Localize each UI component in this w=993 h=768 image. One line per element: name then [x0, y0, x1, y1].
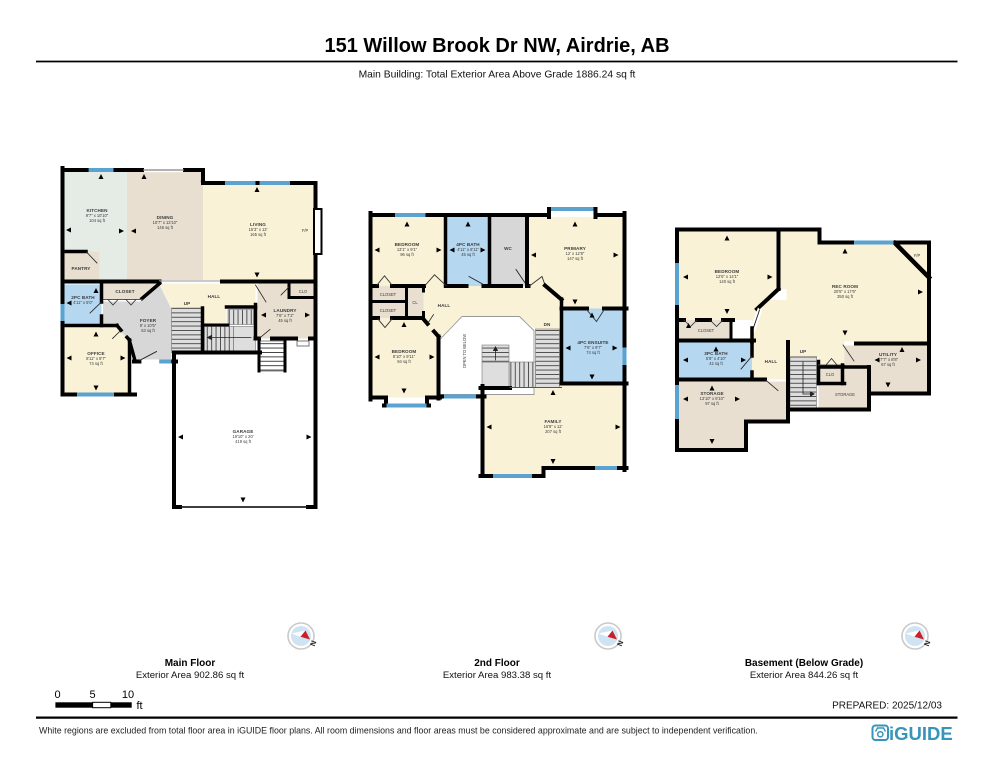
svg-text:Exterior Area 983.38 sq ft: Exterior Area 983.38 sq ft [443, 670, 552, 681]
svg-text:104 sq ft: 104 sq ft [89, 218, 106, 223]
svg-text:PANTRY: PANTRY [72, 266, 91, 271]
svg-text:CLOSET: CLOSET [380, 308, 397, 313]
svg-text:White regions are excluded fro: White regions are excluded from total fl… [39, 726, 758, 736]
svg-text:ft: ft [137, 700, 143, 712]
svg-text:0: 0 [54, 689, 60, 701]
svg-text:Main Building: Total Exterior: Main Building: Total Exterior Area Above… [359, 70, 636, 81]
svg-text:CL: CL [412, 300, 418, 305]
svg-text:5: 5 [89, 689, 95, 701]
svg-text:PREPARED: 2025/12/03: PREPARED: 2025/12/03 [832, 701, 942, 712]
svg-text:97 sq ft: 97 sq ft [705, 401, 719, 406]
svg-text:74 sq ft: 74 sq ft [89, 361, 103, 366]
svg-text:63 sq ft: 63 sq ft [141, 328, 155, 333]
svg-text:146 sq ft: 146 sq ft [157, 225, 174, 230]
svg-text:74 sq ft: 74 sq ft [586, 350, 600, 355]
svg-text:UP: UP [800, 349, 807, 354]
svg-text:F/P: F/P [914, 253, 921, 258]
svg-text:10: 10 [122, 689, 134, 701]
svg-text:Exterior Area 844.26 sq ft: Exterior Area 844.26 sq ft [750, 670, 859, 681]
svg-text:HALL: HALL [765, 359, 778, 364]
svg-text:45 sq ft: 45 sq ft [461, 252, 475, 257]
svg-text:147 sq ft: 147 sq ft [567, 256, 584, 261]
svg-text:STORAGE: STORAGE [835, 392, 855, 397]
svg-text:iGUIDE: iGUIDE [889, 723, 953, 744]
svg-text:419 sq ft: 419 sq ft [235, 439, 252, 444]
svg-text:HALL: HALL [208, 294, 221, 299]
svg-text:HALL: HALL [438, 303, 451, 308]
svg-text:DN: DN [544, 322, 551, 327]
svg-text:4'11" x 5'0": 4'11" x 5'0" [73, 300, 93, 305]
svg-text:WC: WC [504, 246, 512, 251]
svg-text:2nd Floor: 2nd Floor [474, 658, 520, 669]
svg-text:140 sq ft: 140 sq ft [719, 279, 736, 284]
svg-text:67 sq ft: 67 sq ft [881, 362, 895, 367]
svg-text:CLOSET: CLOSET [380, 292, 397, 297]
svg-text:CLO: CLO [826, 372, 834, 377]
svg-text:Exterior Area 902.86 sq ft: Exterior Area 902.86 sq ft [136, 670, 245, 681]
svg-text:165 sq ft: 165 sq ft [250, 232, 267, 237]
svg-text:Basement (Below Grade): Basement (Below Grade) [745, 658, 863, 669]
svg-text:96 sq ft: 96 sq ft [400, 252, 414, 257]
svg-text:94 sq ft: 94 sq ft [397, 359, 411, 364]
svg-text:45 sq ft: 45 sq ft [278, 318, 292, 323]
svg-text:151 Willow Brook Dr NW, Airdri: 151 Willow Brook Dr NW, Airdrie, AB [324, 35, 669, 57]
svg-text:UP: UP [184, 301, 191, 306]
svg-text:F/P: F/P [302, 228, 309, 233]
svg-text:CLOSET: CLOSET [698, 328, 715, 333]
svg-text:CLO: CLO [299, 289, 307, 294]
svg-text:CLOSET: CLOSET [115, 289, 134, 294]
svg-text:42 sq ft: 42 sq ft [709, 361, 723, 366]
svg-text:OPEN TO BELOW: OPEN TO BELOW [462, 334, 467, 368]
svg-text:207 sq ft: 207 sq ft [545, 429, 562, 434]
svg-text:350 sq ft: 350 sq ft [837, 294, 854, 299]
svg-text:Main Floor: Main Floor [165, 658, 216, 669]
